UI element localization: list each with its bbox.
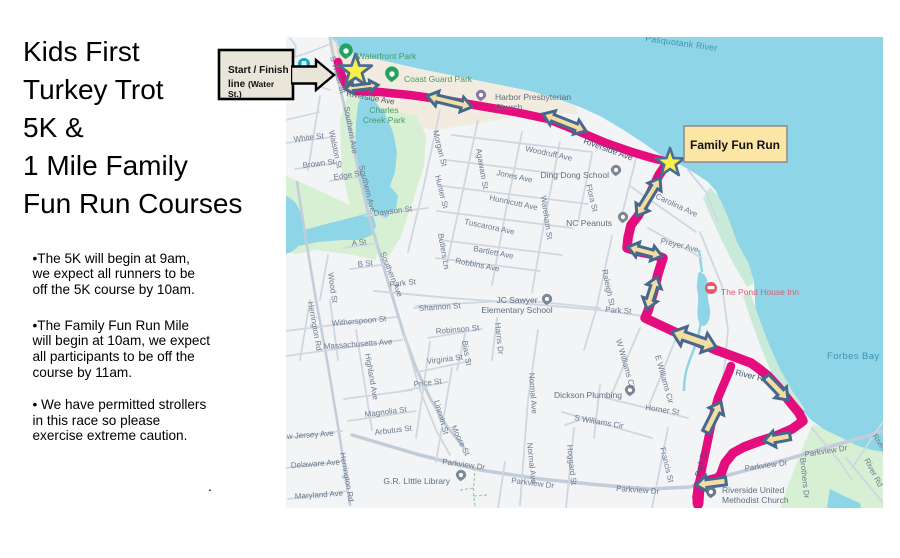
svg-text:Waterfront Park: Waterfront Park [357,51,417,61]
svg-text:NC Peanuts: NC Peanuts [566,218,612,228]
svg-text:Elementary School: Elementary School [481,305,552,315]
svg-text:Harbor Presbyterian: Harbor Presbyterian [495,92,571,102]
svg-text:The Pond House Inn: The Pond House Inn [721,287,799,297]
svg-text:Charles: Charles [369,105,398,115]
svg-text:St.): St.) [228,89,242,99]
svg-text:Riverside United: Riverside United [722,485,785,495]
svg-text:Dickson Plumbing: Dickson Plumbing [554,390,622,400]
svg-text:A St: A St [351,237,367,248]
svg-text:Church: Church [495,102,523,112]
svg-text:G.R. LIttle Library: G.R. LIttle Library [383,476,450,486]
svg-text:Park St: Park St [605,305,633,316]
svg-text:JC Sawyer: JC Sawyer [496,295,537,305]
svg-text:Ding Dong School: Ding Dong School [540,170,609,180]
svg-text:Start / Finish: Start / Finish [228,65,289,76]
svg-text:Creek Park: Creek Park [363,115,406,125]
svg-text:Family Fun Run: Family Fun Run [690,138,780,152]
svg-text:B St: B St [357,258,374,269]
svg-text:Methodist Church: Methodist Church [722,495,789,505]
svg-text:Coast Guard Park: Coast Guard Park [404,74,473,84]
svg-text:Forbes Bay: Forbes Bay [827,351,880,362]
